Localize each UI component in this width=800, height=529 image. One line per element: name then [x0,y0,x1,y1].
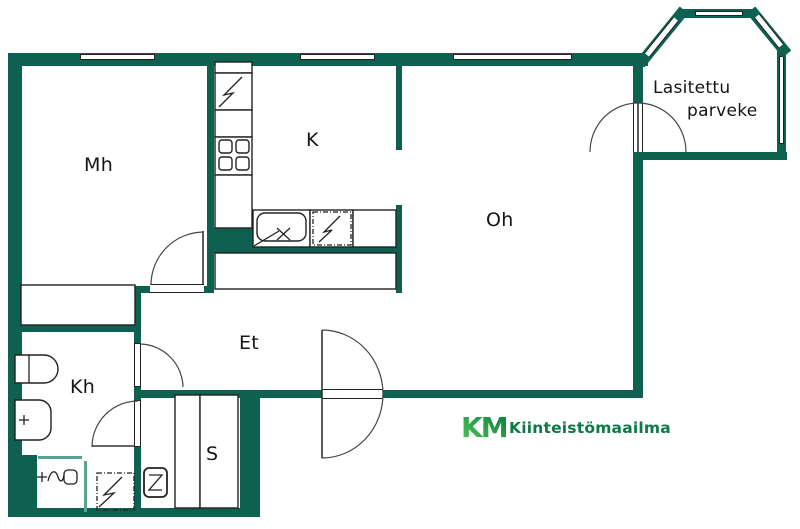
bathroom-door [140,344,183,387]
livingroom-window [453,54,572,60]
bathroom-top-wall [8,325,141,332]
kitchen-counter-row [253,210,396,247]
kitchen-window [300,54,375,60]
sauna-right-exterior-wall [240,392,260,517]
shower-glass-partition-h [38,456,82,459]
bedroom-door-opening [150,284,204,293]
dishwasher [313,212,351,245]
bathroom-door-opening [134,343,141,387]
washing-machine-reservation [97,473,134,510]
right-exterior-wall-top [633,58,643,103]
room-label-sauna: S [206,443,218,465]
sauna-door-opening [134,400,141,447]
kitchen-sink-icon [254,213,306,246]
balcony-bottom-wall [633,152,787,160]
kitchen-corner-block [210,228,253,253]
balcony-diagonal-walls [640,10,787,64]
kitchen-cabinet-column [215,62,252,228]
shower-glass-partition-v [84,461,87,512]
balcony-diagonal-window-left [647,19,676,55]
entrance-door-opening [322,389,383,399]
room-label-bedroom: Mh [84,154,113,176]
stove [215,137,252,175]
bedroom-door [151,231,203,285]
stove-burners-icon [219,140,249,170]
sauna-heater-icon [144,468,167,497]
bedroom-window [80,54,155,60]
left-bottom-wall-block [8,455,37,512]
room-label-kitchen: K [306,129,319,151]
fridge [215,73,252,110]
balcony-diagonal-window-right [757,16,781,46]
company-name: Kiinteistömaailma [509,419,671,437]
room-label-bathroom: Kh [70,376,95,398]
kitchen-livingroom-divider-top [396,66,402,150]
balcony-top-window [695,11,743,16]
balcony-door-opening [633,103,643,152]
hall-bottom-wall-left [134,390,322,398]
hall-closet [215,253,396,289]
electric-appliance-icon [319,216,340,242]
sauna-door [92,401,138,447]
room-label-livingroom: Oh [486,209,514,231]
sink-cell [253,210,310,247]
shower-mixer-icon [37,470,77,484]
bathroom-right-divider [134,286,141,512]
bedroom-kitchen-divider [207,66,214,293]
floor-plan: KM Mh K Oh Et Kh S Lasitettu parveke Kii… [0,0,800,529]
room-label-hall: Et [239,332,259,354]
right-exterior-wall-main [633,152,643,398]
bedroom-wardrobe [21,285,135,325]
electric-appliance-icon [219,77,242,107]
shower-area [37,456,87,512]
balcony-label-line1: Lasitettu [653,78,730,98]
electric-appliance-icon [99,477,122,507]
balcony-label-line2: parveke [687,101,758,121]
left-exterior-wall [8,53,22,457]
balcony-right-window [779,56,784,144]
hall-bottom-wall-right [383,390,643,398]
km-logo: KM [461,411,507,444]
